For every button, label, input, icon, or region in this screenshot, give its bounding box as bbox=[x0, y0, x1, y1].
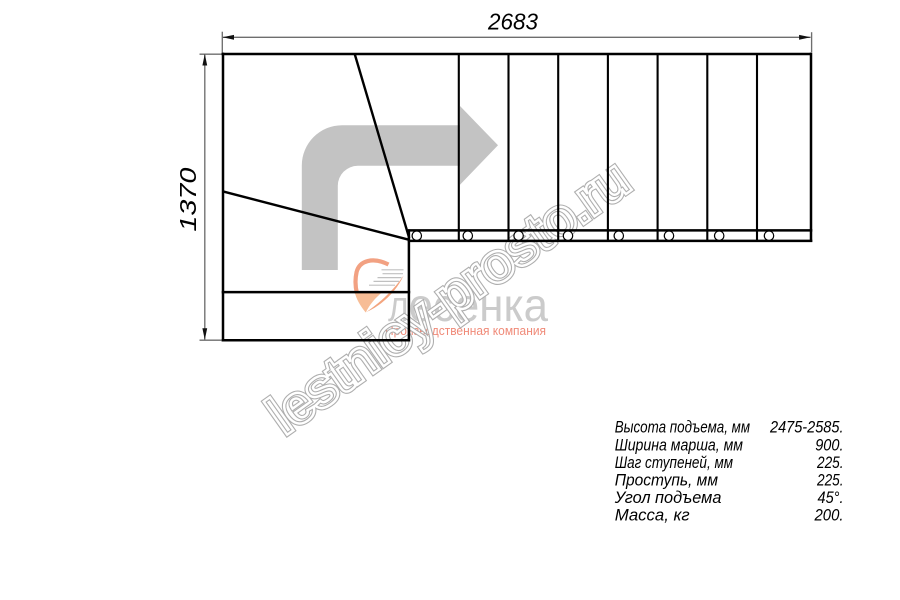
svg-text:900.: 900. bbox=[815, 436, 843, 455]
svg-text:Шаг ступеней, мм: Шаг ступеней, мм bbox=[615, 453, 734, 472]
svg-text:2683: 2683 bbox=[487, 9, 538, 35]
svg-text:Масса, кг: Масса, кг bbox=[615, 506, 690, 525]
svg-text:Ширина марша, мм: Ширина марша, мм bbox=[615, 436, 744, 455]
svg-text:Угол подъема: Угол подъема bbox=[614, 488, 722, 507]
svg-text:225.: 225. bbox=[816, 453, 843, 472]
svg-text:1370: 1370 bbox=[175, 167, 201, 231]
svg-text:45°.: 45°. bbox=[818, 488, 844, 507]
svg-text:200.: 200. bbox=[814, 506, 844, 525]
svg-text:Высота подъема, мм: Высота подъема, мм bbox=[615, 418, 751, 437]
svg-text:225.: 225. bbox=[816, 471, 843, 490]
svg-text:2475-2585.: 2475-2585. bbox=[769, 418, 843, 437]
svg-text:Проступь, мм: Проступь, мм bbox=[615, 471, 719, 490]
